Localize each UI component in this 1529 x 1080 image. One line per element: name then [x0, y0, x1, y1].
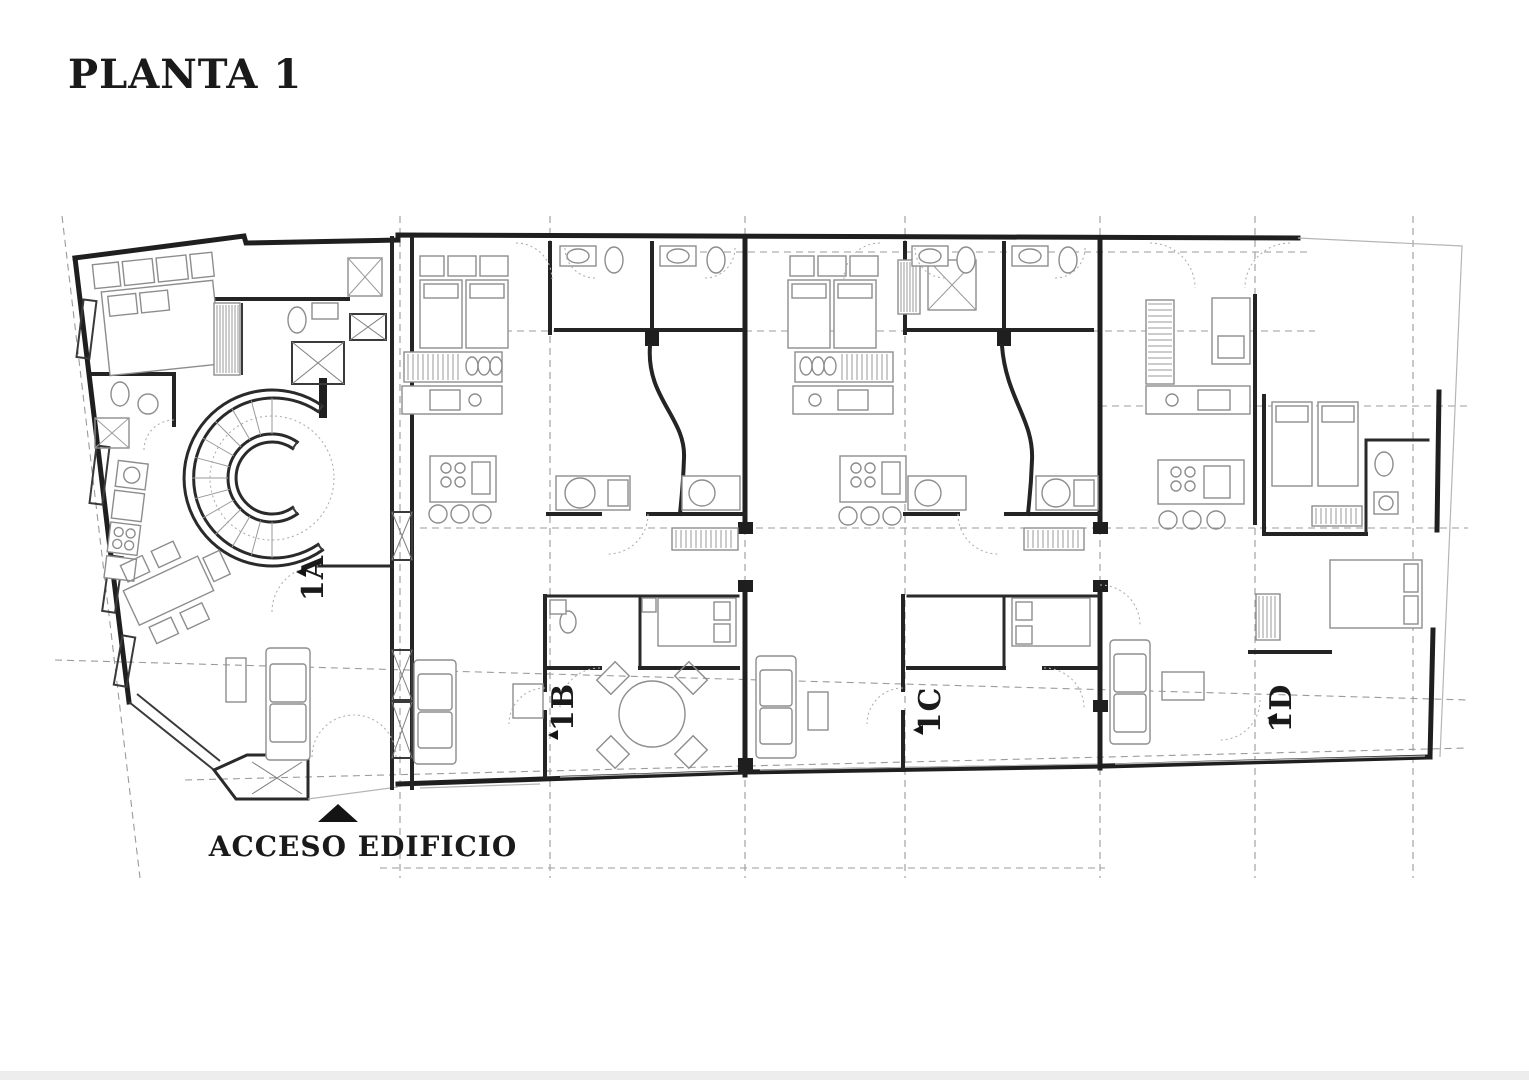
entry-ramp-wall	[129, 694, 220, 770]
vanity-counter	[908, 476, 1098, 510]
sofa	[1110, 640, 1150, 744]
double-bed	[1012, 598, 1090, 646]
coffee-table	[808, 692, 828, 730]
curved-wall-1b	[650, 346, 684, 514]
entrance-arrow-icon	[318, 804, 358, 822]
unit-label-1c: 1C	[913, 687, 948, 735]
kitchen-counter	[1146, 386, 1250, 414]
twin-beds	[1272, 402, 1362, 526]
spiral-staircase	[184, 390, 334, 566]
bathroom	[560, 246, 725, 273]
page-title: PLANTA 1	[68, 51, 302, 98]
curved-wall-1c	[1002, 346, 1032, 514]
svg-text:1B: 1B	[546, 683, 581, 731]
cropped-drawing-strip	[0, 1071, 1529, 1080]
entrance-label: ACCESO EDIFICIO	[208, 830, 517, 863]
fridge-cabinet	[1212, 298, 1250, 364]
vanity-counter	[556, 476, 740, 510]
ensuite-wc	[550, 600, 576, 633]
right-wall	[1430, 392, 1439, 757]
unit-label-1a: 1A	[296, 555, 331, 601]
twin-beds	[788, 256, 878, 348]
hanging-closet	[672, 528, 738, 550]
svg-text:1A: 1A	[296, 555, 331, 601]
shaft-box	[392, 650, 412, 700]
unit-label-1b: 1B	[546, 683, 581, 740]
floor-plan-page: PLANTA 1 1A 1B 1C 1D ACCESO EDIFICIO	[0, 0, 1529, 1080]
double-bed	[92, 252, 223, 376]
unit-label-1d: 1D	[1264, 684, 1299, 733]
kitchen-island	[1158, 460, 1244, 529]
kitchen-island	[429, 456, 496, 523]
wardrobe	[795, 352, 893, 382]
kitchen-counter	[793, 386, 893, 414]
floor-plan-canvas: PLANTA 1 1A 1B 1C 1D ACCESO EDIFICIO	[0, 0, 1529, 1080]
kitchen-island	[839, 456, 906, 525]
kitchen-counter	[402, 386, 502, 414]
svg-text:1C: 1C	[913, 687, 948, 734]
unit-1c	[756, 246, 1098, 758]
coffee-table	[1162, 672, 1204, 700]
round-table	[597, 662, 708, 769]
bottom-wall	[398, 757, 1430, 784]
wardrobe	[1146, 300, 1174, 384]
twin-beds	[420, 256, 508, 348]
wardrobe	[214, 303, 240, 375]
sofa	[266, 648, 310, 760]
stair-treads	[192, 398, 334, 558]
double-bed	[642, 598, 736, 646]
service-shaft-column	[392, 238, 412, 788]
shaft-box	[392, 512, 412, 560]
wardrobe	[404, 352, 502, 382]
shaft-box	[392, 702, 412, 758]
entrance-annotation: ACCESO EDIFICIO	[208, 804, 517, 863]
hanging-closet	[1024, 528, 1084, 550]
bathroom	[1374, 452, 1398, 514]
sofa	[414, 660, 456, 764]
svg-text:1D: 1D	[1264, 684, 1299, 733]
double-bed	[1256, 560, 1422, 640]
sofa	[756, 656, 796, 758]
